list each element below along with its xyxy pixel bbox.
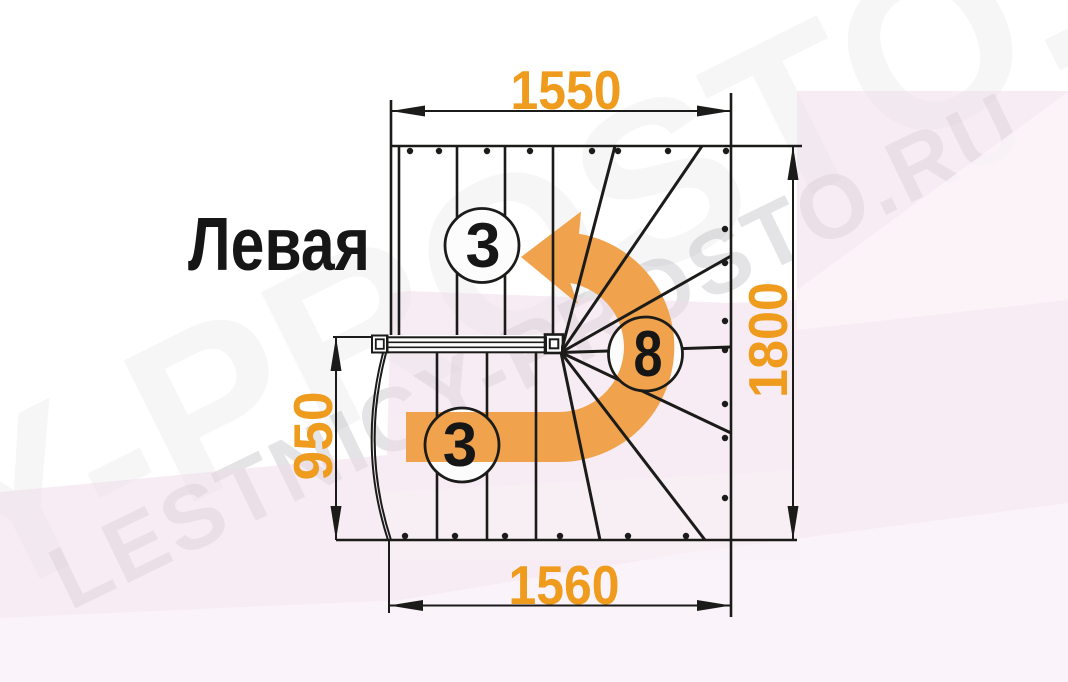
svg-text:1560: 1560 [509, 554, 620, 616]
svg-text:Левая: Левая [188, 202, 370, 286]
svg-text:950: 950 [282, 392, 344, 481]
svg-text:8: 8 [634, 317, 663, 390]
svg-text:3: 3 [465, 211, 500, 281]
svg-text:1550: 1550 [511, 59, 622, 121]
svg-text:1800: 1800 [737, 282, 799, 398]
svg-text:3: 3 [443, 411, 477, 480]
